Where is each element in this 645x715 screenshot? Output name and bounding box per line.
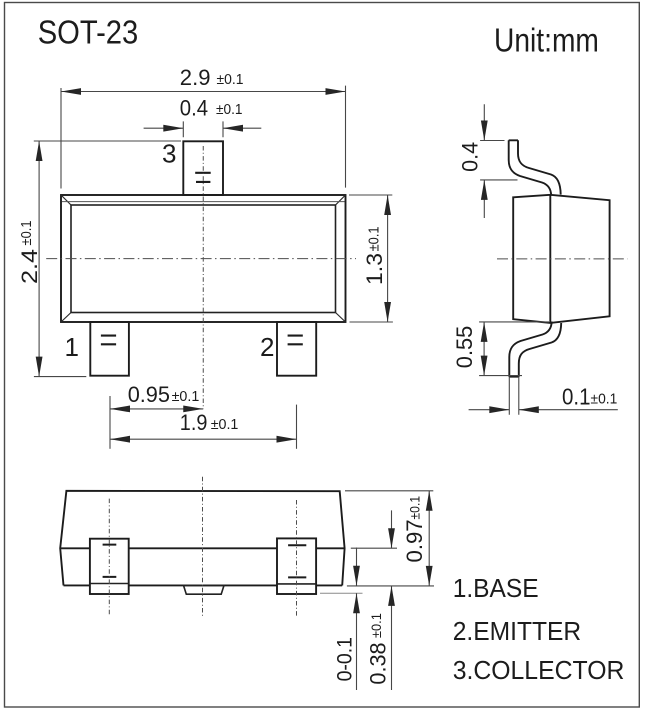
svg-text:±0.1: ±0.1 (216, 102, 243, 118)
svg-text:0-0.1: 0-0.1 (334, 637, 357, 681)
svg-text:±0.1: ±0.1 (172, 389, 200, 405)
svg-text:1.BASE: 1.BASE (453, 573, 539, 603)
svg-text:±0.1: ±0.1 (591, 391, 618, 408)
svg-text:Unit:mm: Unit:mm (494, 21, 599, 58)
svg-text:±0.1: ±0.1 (211, 417, 239, 433)
svg-text:±0.1: ±0.1 (367, 226, 383, 251)
svg-text:1: 1 (65, 332, 79, 362)
svg-text:0.1: 0.1 (562, 383, 591, 409)
svg-text:0.38: 0.38 (365, 642, 390, 684)
svg-text:±0.1: ±0.1 (368, 613, 384, 638)
svg-text:0.97: 0.97 (402, 519, 427, 562)
svg-text:2.EMITTER: 2.EMITTER (453, 616, 582, 646)
svg-text:SOT-23: SOT-23 (38, 13, 139, 50)
svg-text:0.55: 0.55 (452, 326, 477, 369)
svg-text:±0.1: ±0.1 (217, 72, 244, 88)
svg-text:2: 2 (260, 332, 274, 362)
svg-text:3: 3 (162, 139, 176, 169)
svg-text:2.4: 2.4 (17, 249, 42, 284)
svg-text:±0.1: ±0.1 (406, 496, 422, 520)
svg-text:0.95: 0.95 (128, 382, 170, 407)
svg-text:1.9: 1.9 (180, 410, 208, 435)
svg-text:0.4: 0.4 (180, 95, 208, 120)
svg-text:2.9: 2.9 (180, 65, 211, 90)
svg-text:1.3: 1.3 (362, 253, 387, 285)
svg-text:3.COLLECTOR: 3.COLLECTOR (453, 655, 625, 685)
svg-text:0.4: 0.4 (458, 142, 483, 172)
svg-text:±0.1: ±0.1 (19, 221, 35, 246)
